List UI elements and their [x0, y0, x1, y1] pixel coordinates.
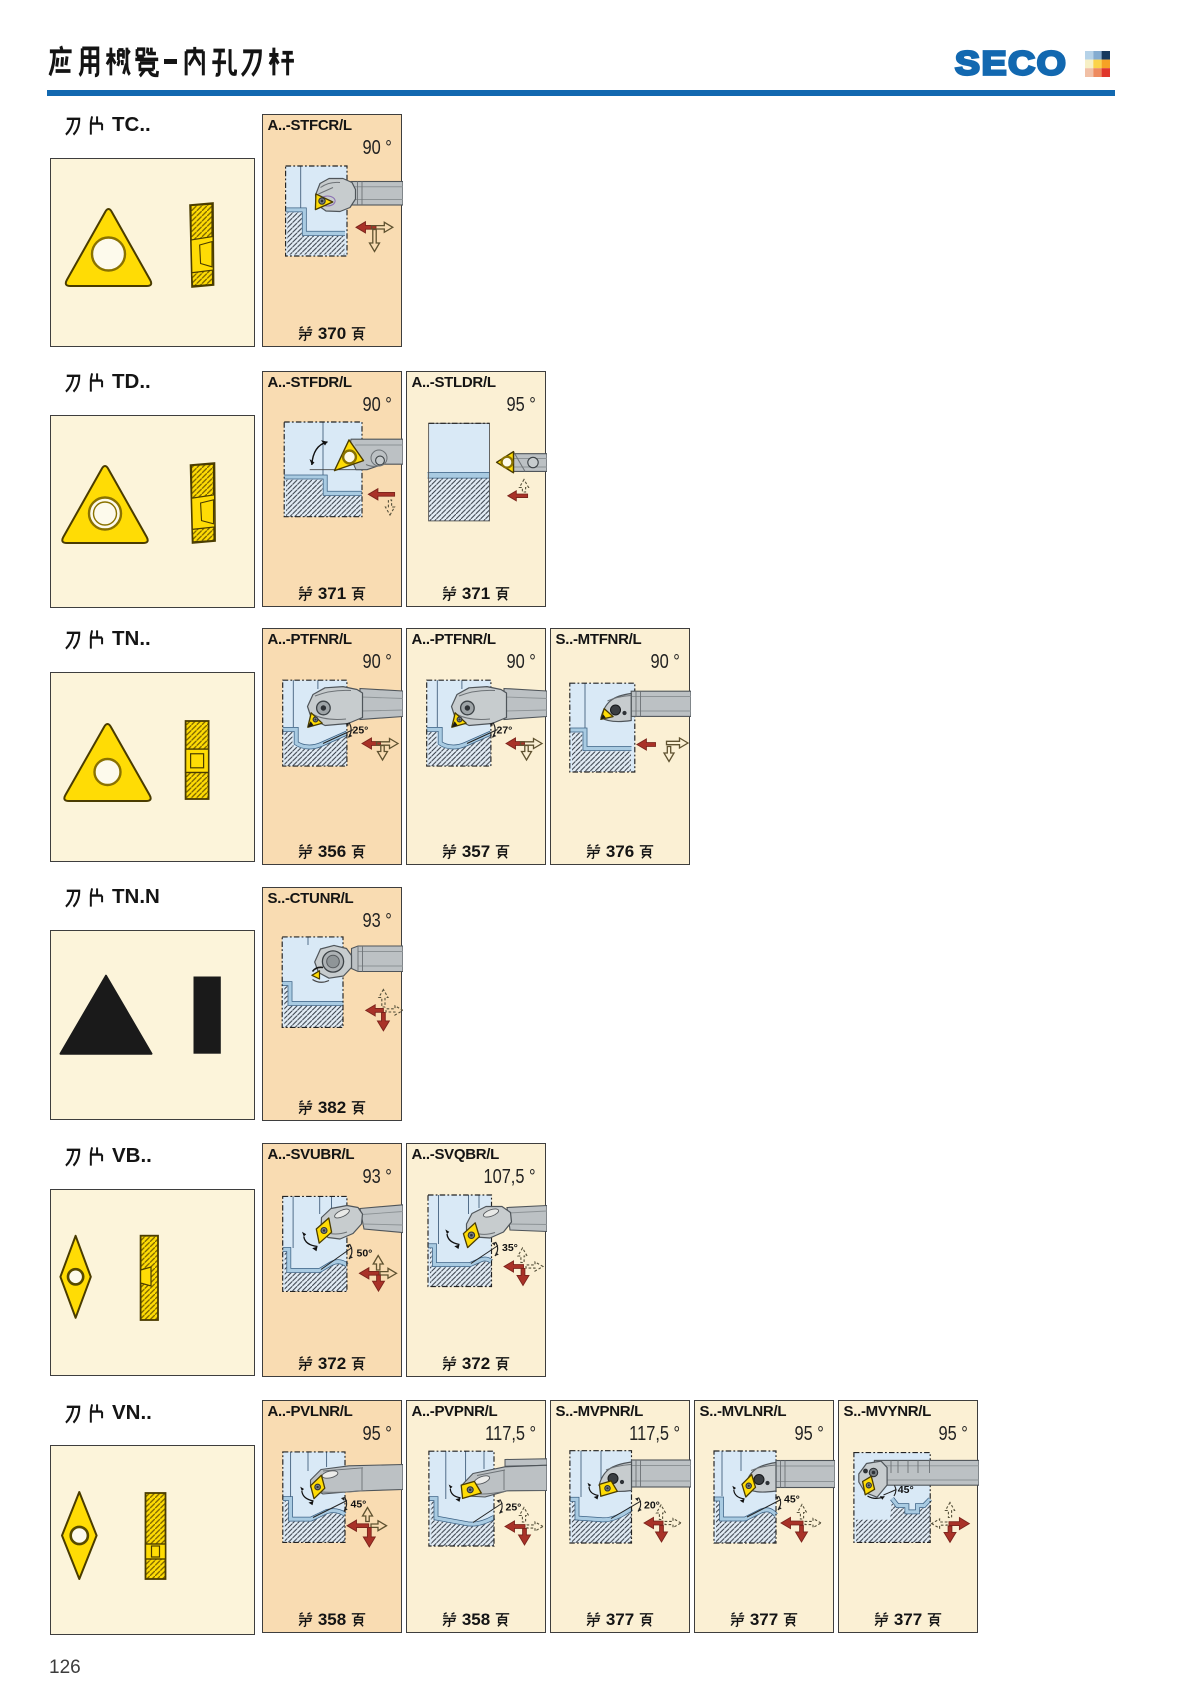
svg-text:25°: 25° — [506, 1502, 522, 1514]
svg-text:35°: 35° — [502, 1242, 518, 1254]
svg-text:25°: 25° — [353, 725, 369, 737]
svg-text:27°: 27° — [497, 725, 513, 737]
svg-text:45°: 45° — [784, 1494, 800, 1506]
svg-text:45°: 45° — [351, 1499, 367, 1511]
svg-text:20°: 20° — [644, 1500, 660, 1512]
svg-text:45°: 45° — [898, 1484, 914, 1496]
svg-text:50°: 50° — [357, 1248, 373, 1260]
